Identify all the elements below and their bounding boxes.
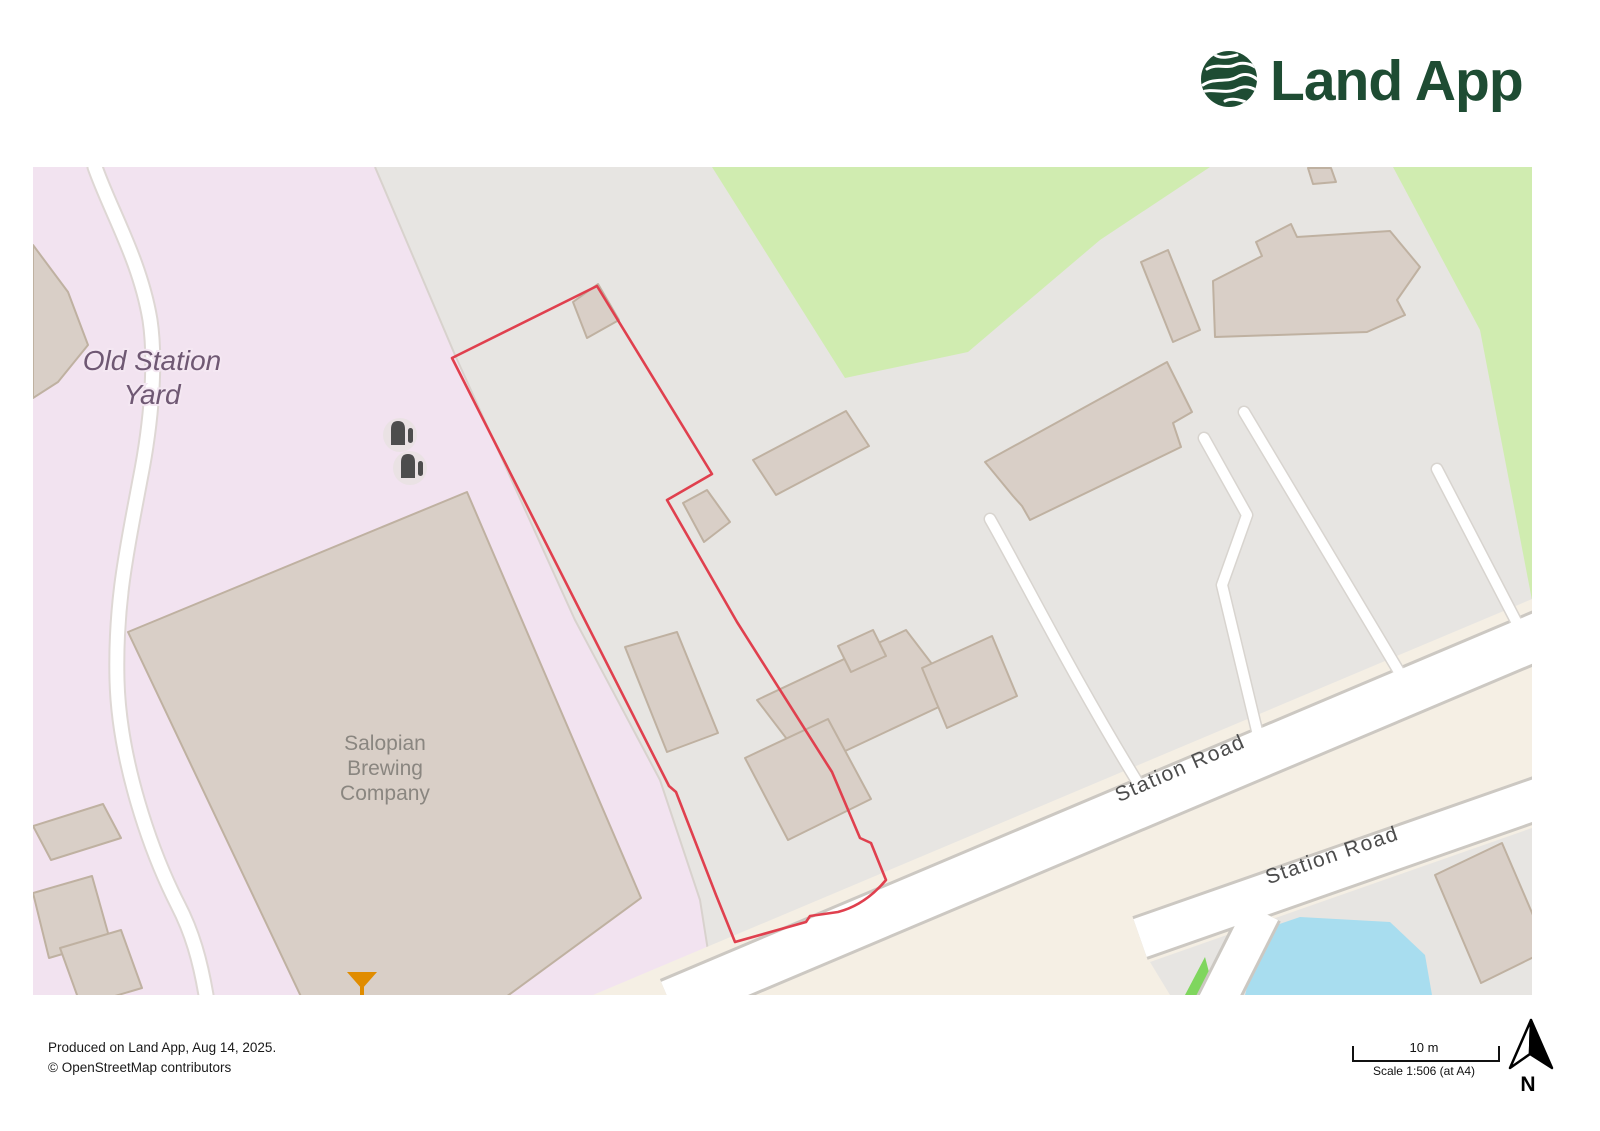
grass-area-top [712,167,1210,378]
header: Land App [1198,48,1523,115]
map-svg: Old Station Yard Salopian Brewing Compan… [33,167,1532,995]
building-label-line1: Salopian [344,732,426,755]
building-label-line3: Company [340,782,430,805]
land-app-logo-icon [1198,48,1260,115]
scale-bar-rule [1352,1046,1500,1062]
land-app-wordmark: Land App [1270,53,1523,110]
storage-tank-icon [393,451,427,485]
building-label-line2: Brewing [347,757,423,780]
storage-tank-icon [383,418,417,452]
footer: Produced on Land App, Aug 14, 2025. © Op… [48,1038,276,1078]
north-label: N [1490,1073,1566,1097]
scale-ratio-label: Scale 1:506 (at A4) [1336,1064,1512,1078]
osm-attribution-text: © OpenStreetMap contributors [48,1058,276,1078]
map-canvas: Old Station Yard Salopian Brewing Compan… [33,167,1532,995]
north-arrow-icon [1504,1018,1558,1072]
produced-text: Produced on Land App, Aug 14, 2025. [48,1038,276,1058]
grass-area-right [1393,167,1532,600]
area-label-line2: Yard [123,379,181,410]
area-label-line1: Old Station [83,345,222,376]
north-indicator: N [1496,1018,1566,1097]
